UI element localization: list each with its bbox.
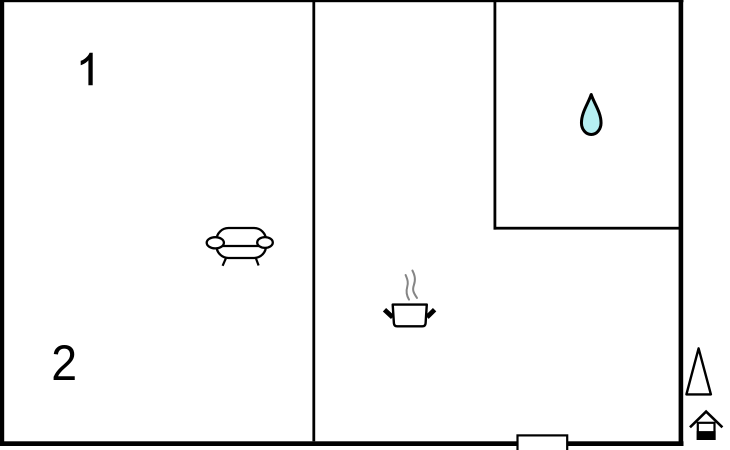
- svg-text:2: 2: [51, 335, 77, 391]
